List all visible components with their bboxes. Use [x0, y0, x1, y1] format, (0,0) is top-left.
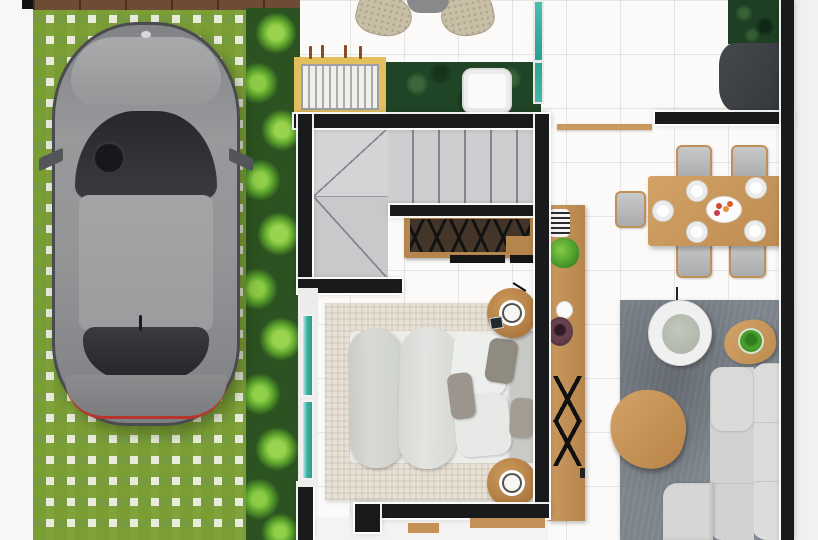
dining-chair [676, 241, 712, 278]
wall-shelf [557, 124, 652, 130]
side-walkway [0, 0, 33, 540]
glass-partition [533, 0, 544, 104]
console-foot [510, 255, 538, 263]
white-tray-table [462, 68, 512, 114]
wall-stair-left [298, 114, 312, 293]
wall-bedroom-left [298, 483, 313, 540]
mat-stick [321, 45, 324, 58]
photo-stack [489, 316, 504, 330]
car-logo [141, 31, 151, 38]
sofa-cushion [711, 367, 753, 431]
dining-chair [729, 241, 766, 278]
floor-plan-render [0, 0, 818, 540]
green-glass-cup [738, 328, 764, 354]
wall-top-right [655, 112, 793, 124]
mat-stick [344, 45, 347, 58]
car-hood [71, 37, 221, 105]
potted-plant [549, 238, 579, 268]
green-plant-wall [728, 0, 781, 44]
car-roof [79, 195, 213, 331]
tv-unit [719, 43, 781, 112]
console-foot [450, 255, 505, 263]
purple-bowl [547, 317, 573, 346]
plate [686, 180, 708, 202]
stair-landing-lower [312, 196, 388, 281]
car-top-view [52, 22, 240, 426]
pillow-accent [509, 397, 536, 439]
mat-stick [309, 46, 312, 59]
door-step [408, 523, 439, 533]
fruit [723, 206, 729, 212]
fruit [727, 201, 733, 207]
door-threshold [470, 518, 545, 528]
wall-bedroom-bottom [355, 504, 549, 518]
shoe-console-cap [506, 236, 538, 253]
striped-cup [549, 209, 570, 237]
x-legs [550, 376, 585, 422]
car-taillight-strip [65, 375, 227, 419]
window-glass-pane [301, 400, 314, 480]
plate [652, 200, 674, 222]
plate [744, 220, 766, 242]
fruit [714, 210, 720, 216]
shoe-console [404, 214, 541, 258]
x-legs [550, 420, 585, 466]
fruit [716, 203, 722, 209]
mat-stick [359, 46, 362, 59]
desk-handle [580, 468, 585, 478]
clock-tray [499, 470, 525, 496]
car-antenna [139, 315, 142, 331]
wall-right [781, 0, 794, 540]
car-windshield [75, 111, 217, 199]
outdoor-table [407, 0, 449, 13]
floor-lamp-arm [676, 287, 678, 300]
hedge-row [246, 8, 300, 540]
dining-chair [615, 191, 646, 228]
wall-terrace-front [294, 114, 549, 128]
window-glass-pane [301, 314, 314, 397]
deck-notch [22, 0, 33, 9]
duvet-fold [348, 328, 404, 469]
wall-center [535, 114, 549, 517]
stair-run [388, 126, 543, 205]
stair-landing-upper [312, 126, 388, 196]
drain-mat [294, 57, 386, 117]
sofa-chaise [663, 483, 713, 540]
plate [745, 177, 767, 199]
swivel-chair-cushion [662, 314, 700, 354]
exterior-right-strip [794, 0, 818, 540]
wall-bedroom-jog [355, 504, 380, 532]
plate [686, 221, 708, 243]
wall-under-stair [390, 205, 549, 216]
car-steering-wheel [92, 141, 126, 175]
